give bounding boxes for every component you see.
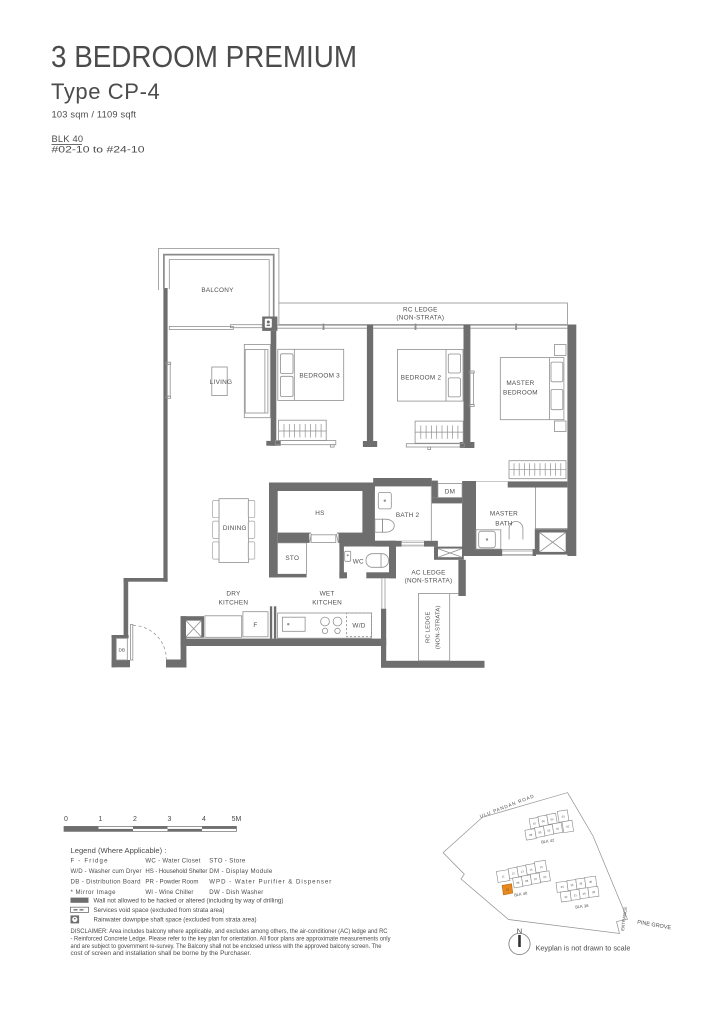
svg-text:DW - Dish Washer: DW - Dish Washer (209, 889, 263, 896)
svg-text:RC LEDGE: RC LEDGE (426, 611, 432, 643)
svg-text:Keyplan is not drawn to scale: Keyplan is not drawn to scale (536, 944, 631, 953)
svg-text:PR - Powder Room: PR - Powder Room (145, 879, 198, 886)
svg-text:BEDROOM: BEDROOM (503, 390, 538, 397)
svg-text:F: F (253, 622, 257, 629)
svg-text:F - Fridge: F - Fridge (71, 858, 109, 865)
svg-text:(NON-STRATA): (NON-STRATA) (396, 315, 444, 322)
svg-text:ULU PANDAN ROAD: ULU PANDAN ROAD (479, 793, 535, 819)
svg-text:0: 0 (64, 816, 68, 823)
svg-text:Type CP-4: Type CP-4 (51, 79, 160, 104)
svg-text:BLK 42: BLK 42 (541, 837, 556, 844)
svg-text:N: N (517, 927, 522, 936)
svg-text:#02-10 to #24-10: #02-10 to #24-10 (52, 145, 145, 155)
svg-text:ENTRANCE: ENTRANCE (620, 906, 628, 931)
svg-text:MASTER: MASTER (490, 511, 518, 518)
svg-text:DRY: DRY (226, 591, 241, 598)
svg-text:WI - Wine Chiller: WI - Wine Chiller (145, 889, 193, 896)
svg-text:BATH 2: BATH 2 (396, 512, 420, 519)
svg-text:WC - Water Closet: WC - Water Closet (145, 858, 200, 865)
svg-text:103 sqm / 1109 sqft: 103 sqm / 1109 sqft (52, 110, 137, 120)
svg-text:MASTER: MASTER (506, 380, 534, 387)
svg-text:BATH: BATH (495, 521, 513, 528)
svg-text:PINE GROVE: PINE GROVE (637, 920, 672, 932)
svg-text:(NON-STRATA): (NON-STRATA) (436, 605, 442, 649)
svg-text:WC: WC (353, 559, 364, 566)
svg-text:Legend (Where Applicable) :: Legend (Where Applicable) : (71, 846, 167, 855)
svg-text:AC LEDGE: AC LEDGE (411, 570, 445, 577)
svg-text:KITCHEN: KITCHEN (218, 600, 248, 607)
svg-text:DB: DB (118, 648, 125, 654)
svg-text:BEDROOM 2: BEDROOM 2 (401, 375, 442, 382)
svg-text:HS - Household Shelter: HS - Household Shelter (145, 868, 207, 875)
svg-text:RC LEDGE: RC LEDGE (403, 307, 438, 314)
svg-text:5M: 5M (232, 816, 242, 823)
svg-text:WET: WET (320, 591, 335, 598)
svg-text:Wall not allowed to be hacked: Wall not allowed to be hacked or altered… (94, 898, 284, 905)
svg-text:DM: DM (445, 489, 455, 496)
svg-text:BLK 40: BLK 40 (52, 134, 84, 144)
svg-text:1: 1 (99, 816, 103, 823)
svg-text:LIVING: LIVING (210, 379, 232, 386)
svg-text:Rainwater downpipe shaft space: Rainwater downpipe shaft space (excluded… (94, 917, 257, 924)
svg-text:W/D - Washer cum Dryer: W/D - Washer cum Dryer (71, 868, 142, 875)
svg-text:* Mirror Image: * Mirror Image (71, 889, 117, 896)
svg-text:WPD - Water Purifier & Dispens: WPD - Water Purifier & Dispenser (209, 879, 331, 886)
svg-text:DINING: DINING (223, 525, 247, 532)
svg-text:Services void space (excluded: Services void space (excluded from strat… (94, 907, 225, 914)
svg-text:HS: HS (315, 510, 324, 517)
svg-text:cost of screen and installatio: cost of screen and installation shall be… (71, 950, 252, 957)
svg-text:and are subject to government: and are subject to government re-survey.… (71, 943, 382, 950)
svg-text:2: 2 (133, 816, 137, 823)
svg-text:3: 3 (168, 816, 172, 823)
svg-text:W/D: W/D (352, 622, 365, 629)
svg-text:KITCHEN: KITCHEN (312, 600, 342, 607)
svg-text:10: 10 (506, 888, 510, 892)
svg-text:DISCLAIMER: Area includes balc: DISCLAIMER: Area includes balcony where … (71, 928, 388, 935)
svg-text:STO - Store: STO - Store (209, 858, 246, 865)
svg-text:- Reinforced Concrete Ledge. P: - Reinforced Concrete Ledge. Please refe… (71, 935, 392, 942)
svg-text:BEDROOM 3: BEDROOM 3 (299, 373, 340, 380)
svg-text:STO: STO (285, 555, 299, 562)
svg-text:BLK 38: BLK 38 (575, 903, 589, 910)
svg-text:DM - Display Module: DM - Display Module (209, 868, 273, 875)
svg-text:BLK 40: BLK 40 (514, 890, 529, 897)
svg-text:3 BEDROOM PREMIUM: 3 BEDROOM PREMIUM (51, 40, 357, 74)
svg-text:4: 4 (202, 816, 206, 823)
svg-text:BALCONY: BALCONY (201, 287, 234, 294)
svg-text:(NON-STRATA): (NON-STRATA) (405, 578, 453, 585)
svg-text:DB - Distribution Board: DB - Distribution Board (71, 879, 141, 886)
